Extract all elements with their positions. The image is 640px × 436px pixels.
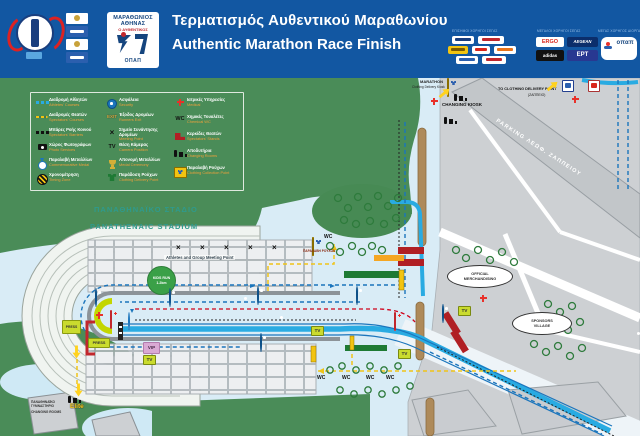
tv-position: TV: [311, 326, 324, 336]
header: ΜΑΡΑΘΩΝΙΟΣ ΑΘΗΝΑΣ Ο ΑΥΘΕΝΤΙΚΟΣ ΟΠΑΠ Τερμ…: [0, 0, 640, 78]
meeting-point-icon: ×: [248, 244, 253, 252]
barriers-icon: [36, 131, 49, 134]
vip-box: VIP: [143, 342, 160, 354]
sponsor-mini-logo: [494, 46, 516, 54]
org-logo-4: [66, 52, 88, 63]
press-box: PRESS: [88, 338, 110, 348]
wc-label: WC: [366, 375, 374, 381]
green-shirt-icon: [108, 174, 116, 181]
changing-icon: [174, 150, 186, 157]
meeting-point-icon: ×: [176, 244, 181, 252]
medical-cross-icon: [96, 312, 103, 319]
marathon-finish-map: ΜΑΡΑΘΩΝΙΟΣ ΑΘΗΝΑΣ Ο ΑΥΘΕΝΤΙΚΟΣ ΟΠΑΠ Τερμ…: [0, 0, 640, 436]
marathon-kiosk-label-1: MARATHON: [420, 79, 443, 84]
medical-cross-icon: [572, 96, 579, 103]
tv-position: TV: [398, 349, 411, 359]
marathon-logo-brand: ΟΠΑΠ: [107, 58, 159, 64]
finish-gantry: [118, 322, 123, 340]
ambulance-icon: [394, 312, 396, 331]
page-title-greek: Τερματισμός Αυθεντικού Μαραθωνίου: [172, 12, 448, 29]
ergo-logo: ERGO: [536, 37, 564, 47]
sponsor-mini-logo: [456, 56, 478, 64]
legend-item-barriers: Μπάρες Ροής ΚοινούSpectators' Barriers: [35, 128, 105, 137]
wc-icon: WC: [175, 116, 184, 122]
ambulance-icon: [110, 310, 112, 329]
segas-logo: [12, 12, 56, 60]
opap-logo-text: οπαπ: [617, 40, 634, 46]
sponsor-kiosk-red-icon: [588, 80, 600, 92]
tv-icon: TV: [108, 144, 115, 150]
org-logo-2: [66, 26, 88, 37]
legend-item-photo: Χώρος ΦωτογράφωνPhoto Services: [35, 143, 105, 152]
spectators-course-icon: [36, 115, 49, 119]
organizer-logos: [66, 13, 88, 65]
stadium-label-greek: ΠΑΝΑΘΗΝΑΪΚΟ ΣΤΑΔΙΟ: [94, 205, 198, 214]
stands-icon: [175, 133, 185, 140]
meeting-point-label: Athletes and Group Meeting Point: [164, 255, 235, 260]
legend-item-medical: Ιατρικές ΥπηρεσίεςMedical: [173, 98, 243, 107]
sponsor-kiosk-blue-icon: [562, 80, 574, 92]
sponsor-mini-logo: [472, 46, 490, 54]
legend-item-timing: ΧρονομέτρησηTiming Zone: [35, 173, 105, 185]
legend-item-security: ΑσφάλειαSecurity: [105, 98, 175, 109]
medical-cross-icon: [177, 99, 184, 106]
marathon-kiosk-label-2: Clothing Delivery Kiosk: [412, 85, 445, 89]
legend-item-meeting-point: × Σημείο Συνάντησης ΔρομέωνMeeting Point: [105, 128, 175, 142]
marathon-logo-title: ΜΑΡΑΘΩΝΙΟΣ ΑΘΗΝΑΣ: [107, 15, 159, 27]
sponsor-caption-2: ΜΕΓΑΛΟΙ ΧΟΡΗΓΟΙ ΣΕΓΑΣ: [537, 29, 581, 33]
wc-label: WC: [324, 234, 332, 240]
meeting-point-icon: ×: [272, 244, 277, 252]
legend-item-changing-rooms: ΑποδυτήριαChanging Rooms: [173, 149, 243, 158]
sponsor-mini-logo: [448, 46, 468, 54]
legend-item-medal-ceremony: Απονομή ΜεταλλίωνMedal Ceremony: [105, 158, 175, 167]
clothing-kiosk-icon: [174, 167, 187, 178]
clothes-pickup-label: ΠΑΡΑΛΑΒΗ ΡΟΥΧΩΝ: [303, 250, 337, 254]
camera-icon: [38, 144, 47, 150]
org-logo-3: [66, 39, 88, 50]
aegean-logo: AEGEAN: [567, 37, 598, 47]
timing-icon: [37, 174, 48, 185]
official-merchandising-label: OFFICIALMERCHANDISING: [447, 265, 513, 288]
trophy-icon: [109, 160, 116, 165]
medical-cross-icon: [431, 98, 438, 105]
opap-figure-icon: [604, 42, 612, 50]
sponsor-caption-1: ΕΠΙΣΗΜΟΙ ΧΟΡΗΓΟΙ ΣΕΓΑΣ: [452, 29, 498, 33]
legend-item-stands: Κερκίδες ΘεατώνSpectators' Stands: [173, 132, 243, 141]
legend-item-camera-position: TV Θέση ΚάμεραςCamera Position: [105, 143, 175, 152]
security-badge-icon: [107, 99, 117, 109]
press-zone-box: PRESS: [62, 320, 81, 334]
sponsor-mini-logo: [452, 36, 474, 44]
stadium-label-english: PANATHENAIC STADIUM: [90, 222, 198, 231]
meeting-point-icon: ×: [110, 129, 115, 136]
medical-cross-icon: [480, 295, 487, 302]
opap-logo: οπαπ: [601, 37, 637, 60]
athletes-course-icon: [36, 101, 49, 104]
wc-label: WC: [317, 375, 325, 381]
changing-kiosk-label: CHANGING KIOSK: [440, 102, 484, 108]
legend-item-runners-exit: EXIT Έξοδος ΔρομέωνRunners Exit: [105, 113, 175, 122]
legend-item-spectators-course: Διαδρομές ΘεατώνSpectators' Courses: [35, 113, 105, 122]
org-logo-1: [66, 13, 88, 24]
legend-panel: Διαδρομή ΑθλητώνAthletes' Courses Διαδρο…: [30, 92, 244, 191]
service-grid: [86, 344, 316, 394]
tv-position: TV: [143, 355, 156, 365]
legend-item-clothing-collection: Παραλαβή ΡούχωνClothing Collection Point: [173, 166, 243, 178]
wc-label: WC: [342, 375, 350, 381]
segas-emblem-icon: [16, 14, 54, 52]
to-clothing-label-2: (ΖΑΠΠΕΙΟ): [528, 93, 545, 97]
legend-item-chemical-wc: WC Χημικές ΤουαλέτεςChemical WC: [173, 115, 243, 124]
meeting-point-icon: ×: [224, 244, 229, 252]
sponsor-mini-logo: [478, 36, 504, 44]
partner-logo: [26, 52, 42, 59]
legend-item-medal: Παραλαβή ΜεταλλίωνCommemorative Medal: [35, 158, 105, 170]
gym-label: ΠΑΝΑΘΗΝΑΪΚΟ ΓΥΜΝΑΣΤΗΡΙΟ CHANGING ROOMS: [31, 400, 69, 414]
sponsors-village-label: SPONSORSVILLAGE: [512, 312, 572, 335]
sponsor-caption-3: ΜΕΓΑΣ ΧΟΡΗΓΟΣ ΔΙΟΡΓΑΝΩΣΗΣ: [598, 29, 640, 33]
marathon-logo: ΜΑΡΑΘΩΝΙΟΣ ΑΘΗΝΑΣ Ο ΑΥΘΕΝΤΙΚΟΣ ΟΠΑΠ: [107, 12, 159, 68]
page-title-english: Authentic Marathon Race Finish: [172, 36, 448, 53]
exit-icon: EXIT: [107, 114, 117, 119]
legend-item-athletes-course: Διαδρομή ΑθλητώνAthletes' Courses: [35, 98, 105, 107]
ert-logo: ΕΡΤ: [567, 50, 598, 61]
meeting-point-icon: ×: [200, 244, 205, 252]
runner-icon: [107, 32, 159, 58]
tv-position: TV: [458, 306, 471, 316]
adidas-logo: adidas: [536, 50, 564, 61]
medal-icon: [128, 312, 130, 331]
wc-label: WC: [386, 375, 394, 381]
legend-item-clothing-delivery: Παράδοση ΡούχωνClothing Delivery Point: [105, 173, 175, 182]
elite-label: Elite: [70, 403, 84, 410]
medal-icon: [38, 161, 47, 170]
sponsor-mini-logo: [482, 56, 506, 64]
